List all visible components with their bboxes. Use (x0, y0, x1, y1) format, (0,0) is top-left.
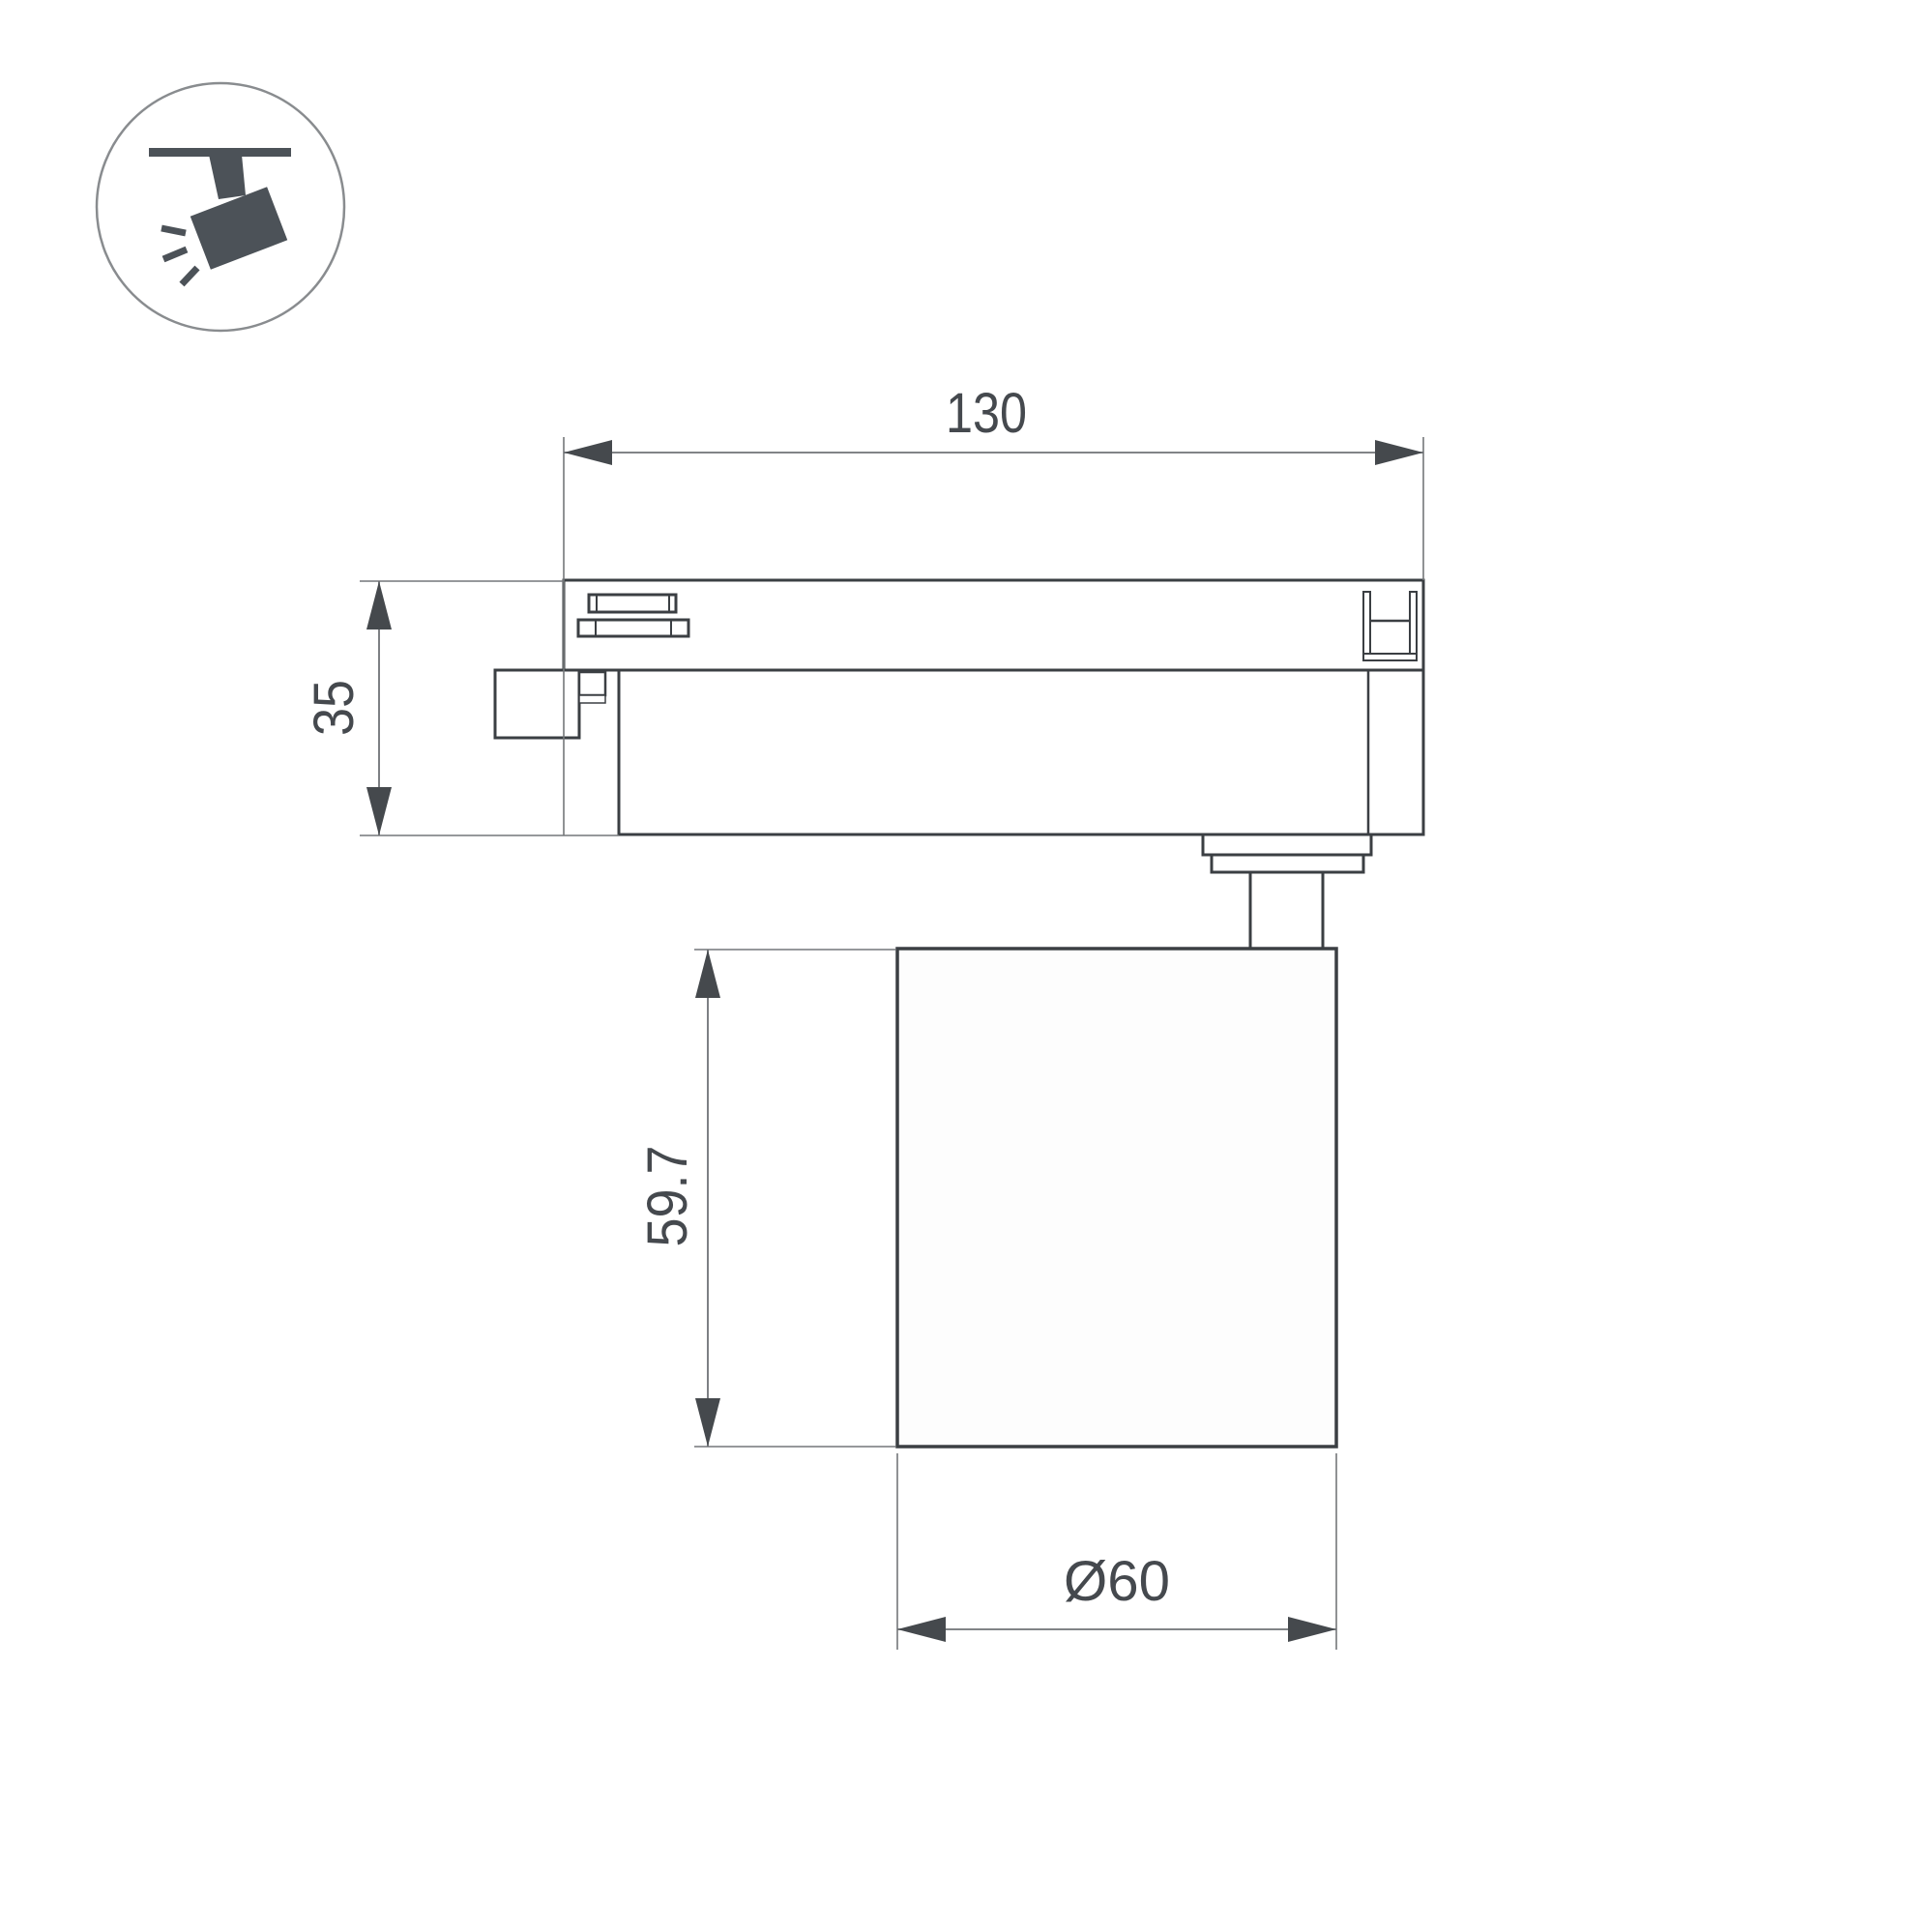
track-spotlight-icon (97, 83, 344, 331)
adapter-gearbox-body (619, 670, 1423, 834)
lock-lever-tab (495, 670, 579, 738)
contact-bar-upper (589, 595, 676, 612)
arrowhead-right (1288, 1617, 1336, 1642)
latch-wall (1363, 592, 1370, 659)
track-adapter-body (564, 580, 1423, 670)
latch-bottom (1363, 654, 1417, 660)
swivel-neck (1250, 872, 1323, 949)
arrowhead-up (366, 581, 392, 629)
icon-ray (161, 228, 186, 233)
drawing-canvas: 130 35 59.7 Ø60 (0, 0, 1932, 1932)
arrowhead-right (1375, 440, 1423, 465)
technical-drawing-svg: 130 35 59.7 Ø60 (0, 0, 1932, 1932)
latch-wall (1410, 592, 1417, 659)
dimension-label-adapter-height: 35 (303, 680, 366, 736)
arrowhead-up (695, 950, 720, 998)
swivel-flange-upper (1203, 834, 1371, 855)
lever-step (579, 672, 605, 695)
arrowhead-down (695, 1398, 720, 1447)
arrowhead-left (564, 440, 612, 465)
arrowhead-left (897, 1617, 946, 1642)
lever-lip (579, 695, 605, 703)
dimension-label-lamp-height: 59.7 (636, 1146, 699, 1247)
swivel-flange-lower (1212, 855, 1363, 872)
dimension-label-track-length: 130 (946, 382, 1027, 445)
arrowhead-down (366, 787, 392, 835)
lamp-cylinder-body (897, 949, 1336, 1447)
fixture-drawing (495, 580, 1423, 1447)
dimension-label-lamp-diameter: Ø60 (1064, 1550, 1170, 1613)
